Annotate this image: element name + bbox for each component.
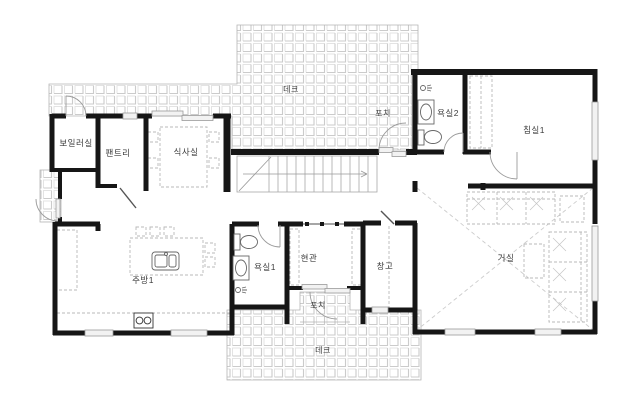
label-storage: 창고 <box>377 261 394 271</box>
floor-plan-page: 데크 포치 보일러실 팬트리 식사실 욕실2 침실1 주방1 욕실1 현관 창고… <box>0 0 640 405</box>
label-deck-top: 데크 <box>283 85 299 94</box>
washbasin-icon <box>233 256 249 280</box>
storage-door-leaf <box>381 211 394 224</box>
staircase <box>237 156 377 192</box>
wardrobe <box>470 76 492 148</box>
window <box>372 307 388 313</box>
label-kitchen1: 주방1 <box>132 275 154 285</box>
label-bathroom1: 욕실1 <box>254 262 276 272</box>
label-porch-bottom: 포치 <box>310 301 326 310</box>
window <box>592 226 598 301</box>
coffee-table <box>524 244 544 278</box>
sofa-icon <box>467 192 587 322</box>
label-porch-top: 포치 <box>375 109 391 118</box>
stove-icon <box>134 313 153 328</box>
pantry-door-leaf <box>120 188 136 208</box>
kitchen-counter <box>57 230 230 313</box>
window <box>445 329 475 335</box>
label-dining-room: 식사실 <box>174 147 199 157</box>
ajar-door-leaf <box>120 188 394 224</box>
top-deck <box>49 25 418 150</box>
side-table <box>560 196 584 222</box>
window <box>123 113 137 119</box>
floor-plan-canvas: 데크 포치 보일러실 팬트리 식사실 욕실2 침실1 주방1 욕실1 현관 창고… <box>0 0 640 405</box>
kitchen-sink-icon <box>152 252 179 270</box>
shower-icon <box>421 85 433 91</box>
toilet-icon <box>234 234 258 250</box>
window <box>535 329 561 335</box>
toilet-icon <box>418 130 442 145</box>
label-deck-bottom: 데크 <box>315 346 331 355</box>
window <box>592 102 598 160</box>
label-bedroom1: 침실1 <box>523 125 545 135</box>
dining-table <box>148 127 219 187</box>
west-door-panel <box>56 199 60 218</box>
washbasin-icon <box>418 100 434 124</box>
label-pantry: 팬트리 <box>106 148 131 158</box>
sofa-hatch <box>472 197 566 311</box>
shower-icon <box>236 287 248 293</box>
label-living-room: 거실 <box>498 253 515 263</box>
entrance-partition <box>303 222 344 226</box>
label-bathroom2: 욕실2 <box>437 108 459 118</box>
window <box>171 330 207 336</box>
window <box>85 330 113 336</box>
label-entrance: 현관 <box>301 253 318 263</box>
label-boiler-room: 보일러실 <box>59 138 92 148</box>
